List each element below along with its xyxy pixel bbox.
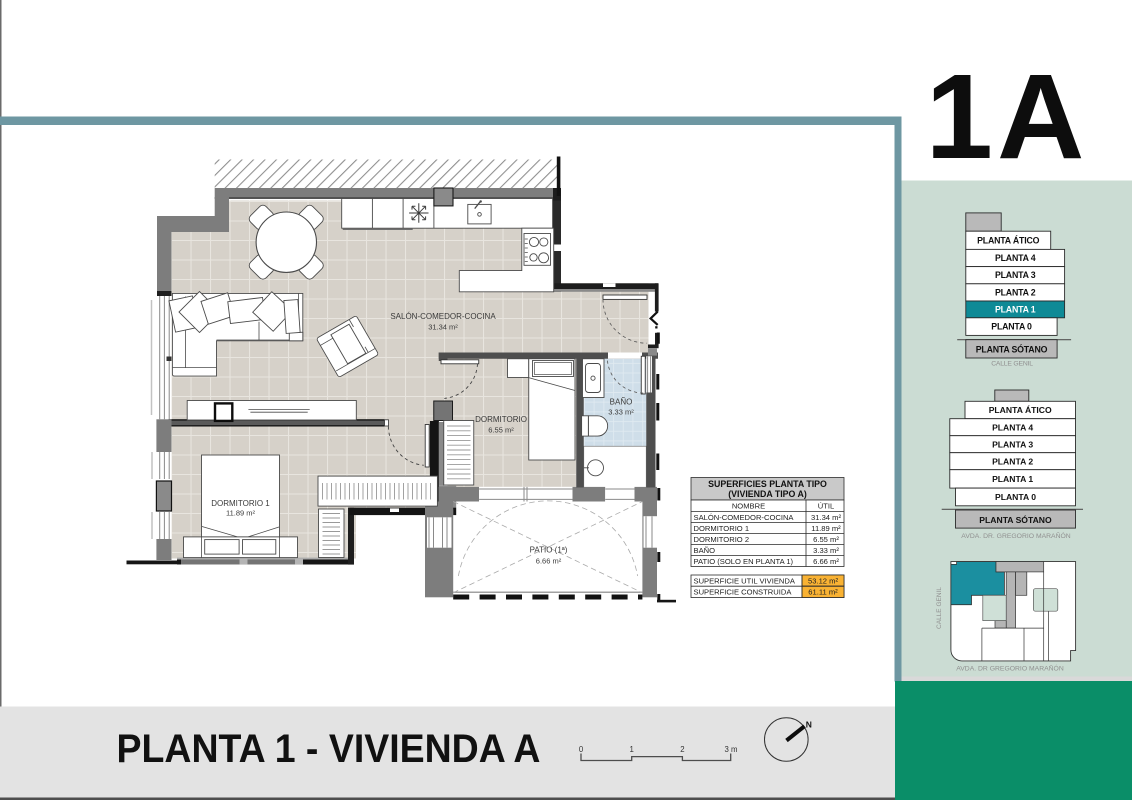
svg-text:6.66 m²: 6.66 m² (813, 557, 839, 566)
svg-text:PATIO (1ª): PATIO (1ª) (530, 546, 568, 555)
svg-text:3.33 m²: 3.33 m² (813, 546, 839, 555)
svg-text:PLANTA 4: PLANTA 4 (995, 253, 1036, 263)
svg-text:PLANTA 3: PLANTA 3 (992, 440, 1033, 450)
svg-text:DORMITORIO 1: DORMITORIO 1 (694, 524, 750, 533)
svg-text:3 m: 3 m (725, 745, 738, 754)
svg-text:(VIVIENDA TIPO A): (VIVIENDA TIPO A) (728, 489, 807, 499)
svg-text:PLANTA SÓTANO: PLANTA SÓTANO (979, 514, 1052, 525)
svg-text:1A: 1A (926, 48, 1089, 184)
svg-text:N: N (806, 720, 812, 730)
svg-text:NOMBRE: NOMBRE (732, 502, 765, 511)
svg-text:PATIO (SOLO EN PLANTA 1): PATIO (SOLO EN PLANTA 1) (694, 557, 794, 566)
svg-text:PLANTA 1: PLANTA 1 (995, 304, 1036, 314)
svg-text:CALLE GENIL: CALLE GENIL (991, 361, 1033, 368)
svg-text:61.11 m²: 61.11 m² (808, 588, 838, 597)
svg-text:PLANTA 0: PLANTA 0 (995, 492, 1036, 502)
svg-text:31.34 m²: 31.34 m² (428, 323, 458, 332)
svg-text:6.55 m²: 6.55 m² (488, 426, 514, 435)
svg-text:AVDA. DR. GREGORIO MARAÑÓN: AVDA. DR. GREGORIO MARAÑÓN (961, 531, 1070, 540)
svg-text:PLANTA ÁTICO: PLANTA ÁTICO (977, 235, 1039, 245)
svg-text:1: 1 (630, 745, 634, 754)
svg-text:6.55 m²: 6.55 m² (813, 535, 839, 544)
svg-text:AVDA. DR GREGORIO MARAÑÓN: AVDA. DR GREGORIO MARAÑÓN (956, 664, 1064, 673)
svg-text:31.34 m²: 31.34 m² (811, 513, 841, 522)
svg-text:0: 0 (579, 745, 584, 754)
svg-text:PLANTA SÓTANO: PLANTA SÓTANO (976, 343, 1048, 354)
svg-text:2: 2 (680, 745, 684, 754)
svg-text:SALÓN-COMEDOR-COCINA: SALÓN-COMEDOR-COCINA (694, 513, 795, 522)
svg-text:PLANTA 4: PLANTA 4 (992, 423, 1033, 433)
svg-text:DORMITORIO 2: DORMITORIO 2 (694, 535, 750, 544)
svg-text:11.89 m²: 11.89 m² (811, 524, 841, 533)
svg-text:ÚTIL: ÚTIL (818, 502, 834, 511)
svg-text:SUPERFICIE UTIL VIVIENDA: SUPERFICIE UTIL VIVIENDA (694, 576, 796, 585)
svg-text:53.12 m²: 53.12 m² (808, 576, 838, 585)
svg-text:SALÓN-COMEDOR-COCINA: SALÓN-COMEDOR-COCINA (390, 312, 496, 321)
svg-text:BAÑO: BAÑO (694, 546, 716, 555)
svg-text:CALLE GENIL: CALLE GENIL (936, 587, 943, 629)
svg-text:BAÑO: BAÑO (610, 398, 633, 407)
svg-text:3.33 m²: 3.33 m² (608, 408, 634, 417)
svg-text:SUPERFICIE CONSTRUIDA: SUPERFICIE CONSTRUIDA (694, 588, 793, 597)
svg-text:DORMITORIO 1: DORMITORIO 1 (211, 499, 270, 508)
svg-text:SUPERFICIES PLANTA TIPO: SUPERFICIES PLANTA TIPO (708, 479, 827, 489)
svg-text:PLANTA 3: PLANTA 3 (995, 270, 1036, 280)
svg-text:PLANTA 2: PLANTA 2 (995, 287, 1036, 297)
svg-text:PLANTA 2: PLANTA 2 (992, 457, 1033, 467)
svg-text:PLANTA 1 - VIVIENDA A: PLANTA 1 - VIVIENDA A (117, 727, 541, 771)
svg-text:11.89 m²: 11.89 m² (226, 509, 256, 518)
svg-text:DORMITORIO: DORMITORIO (475, 415, 527, 424)
svg-text:PLANTA ÁTICO: PLANTA ÁTICO (989, 405, 1052, 415)
svg-text:PLANTA 1: PLANTA 1 (992, 474, 1033, 484)
svg-text:PLANTA 0: PLANTA 0 (991, 322, 1032, 332)
svg-text:6.66 m²: 6.66 m² (536, 557, 562, 566)
